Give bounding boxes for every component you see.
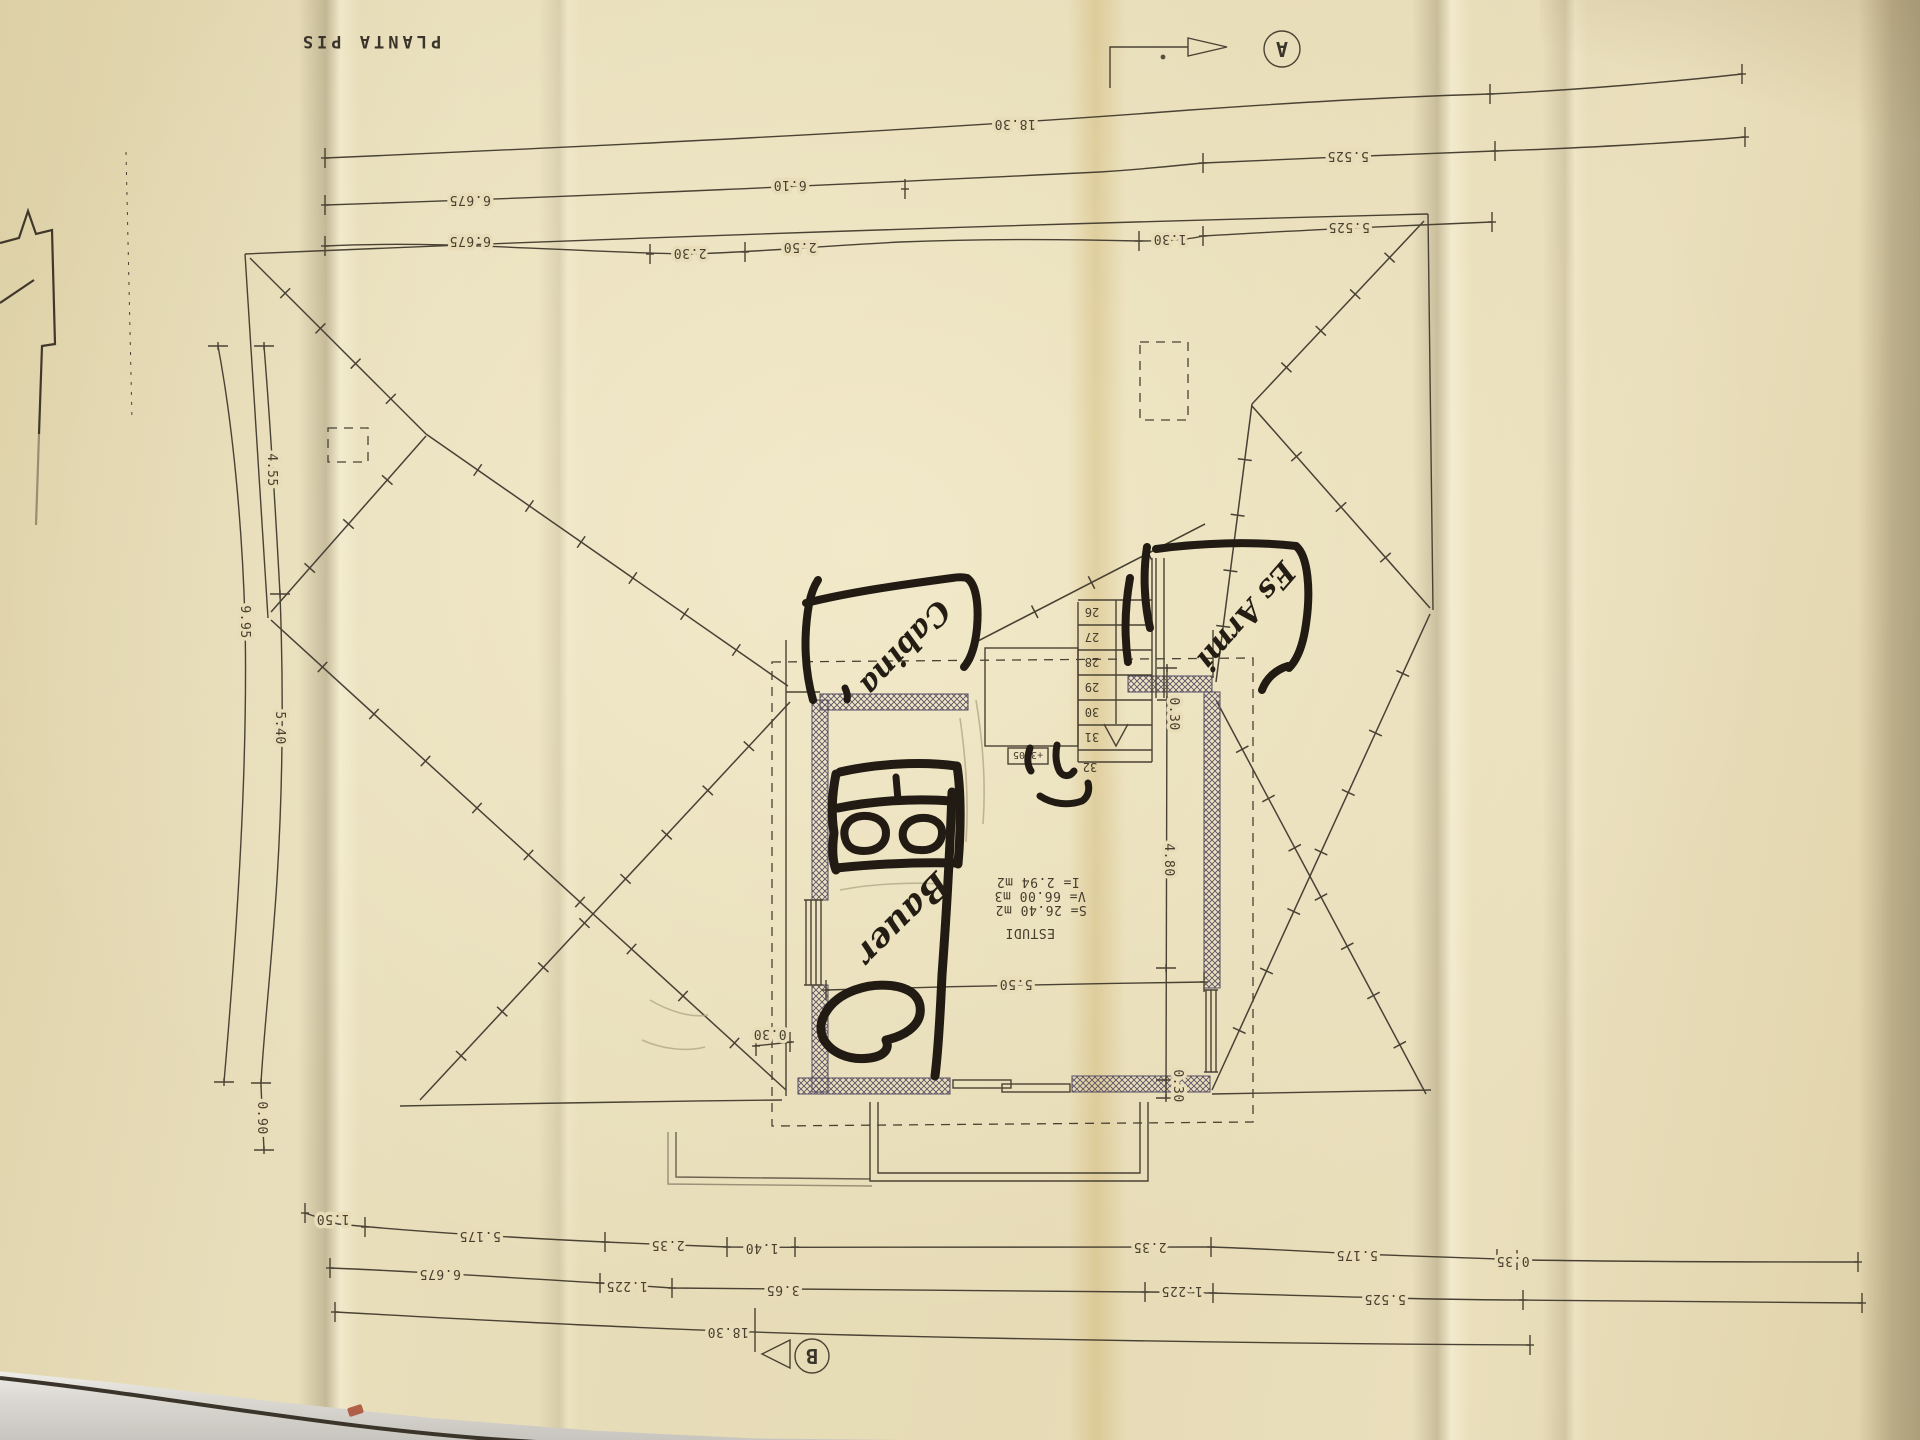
dim-label: 0.30 — [1170, 1069, 1185, 1102]
dim-label: 1.225 — [606, 1278, 648, 1293]
dim-label: 2.50 — [783, 239, 816, 254]
dim-label: 0.30 — [1166, 697, 1181, 730]
dim-label: 4.80 — [1161, 843, 1176, 876]
dim-label: 5.525 — [1328, 219, 1370, 234]
dim-label: 0.35 — [1496, 1253, 1529, 1268]
margin-dashdot-line — [126, 152, 132, 420]
stair-step-number: 27 — [1085, 630, 1099, 644]
dim-label: 1.40 — [745, 1240, 778, 1255]
dim-label: 2.35 — [651, 1237, 684, 1252]
section-marker-a: A — [1110, 31, 1300, 88]
handwritten-room-label: Cabina — [852, 593, 957, 702]
dim-label: 0.90 — [254, 1101, 269, 1134]
dim-label: 6.675 — [449, 233, 491, 248]
window-bottom — [953, 1080, 1070, 1092]
dimension-ticks — [208, 64, 1866, 1355]
dim-label: 3.65 — [766, 1282, 799, 1297]
floorplan-drawing: A B PLANTA PIS 18.30 6.675 6.10 5.525 6.… — [0, 0, 1920, 1440]
dim-label: 2.35 — [1133, 1239, 1166, 1254]
dim-label: 18.30 — [994, 116, 1036, 131]
room-volume: V= 66.00 m3 — [994, 888, 1086, 903]
dim-label: 9.95 — [237, 605, 252, 638]
paper-bottom-edge — [0, 1378, 640, 1440]
dim-label: 6.675 — [419, 1266, 461, 1281]
dim-label: 1.225 — [1161, 1283, 1203, 1298]
dim-label: 4.55 — [264, 453, 279, 486]
dim-label: 5.50 — [999, 976, 1032, 991]
stair-step-number: 31 — [1085, 730, 1099, 744]
room-surface: S= 26.40 m2 — [995, 902, 1087, 917]
room-illumination: I= 2.94 m2 — [996, 874, 1079, 889]
dim-label: 5.40 — [272, 711, 287, 744]
stair-step-number: 26 — [1085, 605, 1099, 619]
section-letter-b: B — [806, 1344, 818, 1368]
dim-label: 6.10 — [773, 177, 806, 192]
dim-label: 1.30 — [1153, 231, 1186, 246]
roof-eaves — [245, 214, 1433, 1106]
section-marker-b: B — [755, 1308, 829, 1373]
drawing-title: PLANTA PIS — [299, 31, 441, 51]
stair-step-number: 28 — [1085, 655, 1099, 669]
dim-label: 6.675 — [449, 192, 491, 207]
dim-line-room-depth — [1166, 666, 1167, 1100]
dim-label: 5.525 — [1327, 148, 1369, 163]
handwritten-room-label: Es Armi — [1189, 553, 1303, 677]
room-name: ESTUDI — [1005, 925, 1055, 940]
window-left — [804, 900, 823, 985]
dim-label: 5.175 — [459, 1228, 501, 1243]
ink-speck — [1161, 55, 1166, 60]
window-right — [1204, 990, 1218, 1072]
dimension-lines — [218, 74, 1862, 1345]
dim-label: 1.50 — [316, 1211, 349, 1226]
stair-step-number: 32 — [1083, 760, 1097, 774]
dim-label: 5.525 — [1364, 1291, 1406, 1306]
dim-label: 2.30 — [673, 245, 706, 260]
section-letter-a: A — [1276, 37, 1288, 61]
chimney-sketch — [0, 211, 55, 525]
blueprint-photo: A B PLANTA PIS 18.30 6.675 6.10 5.525 6.… — [0, 0, 1920, 1440]
dim-label: 0.30 — [753, 1026, 786, 1041]
stair-step-number: 30 — [1085, 705, 1099, 719]
dashed-outlines — [328, 342, 1253, 1126]
stair-step-number: 29 — [1085, 680, 1099, 694]
stair-direction-arrow — [1104, 724, 1128, 746]
terrace-outline — [668, 1102, 1148, 1186]
dim-label: 18.30 — [707, 1324, 749, 1339]
dim-label: 5.175 — [1336, 1247, 1378, 1262]
stair-landing — [985, 648, 1078, 746]
